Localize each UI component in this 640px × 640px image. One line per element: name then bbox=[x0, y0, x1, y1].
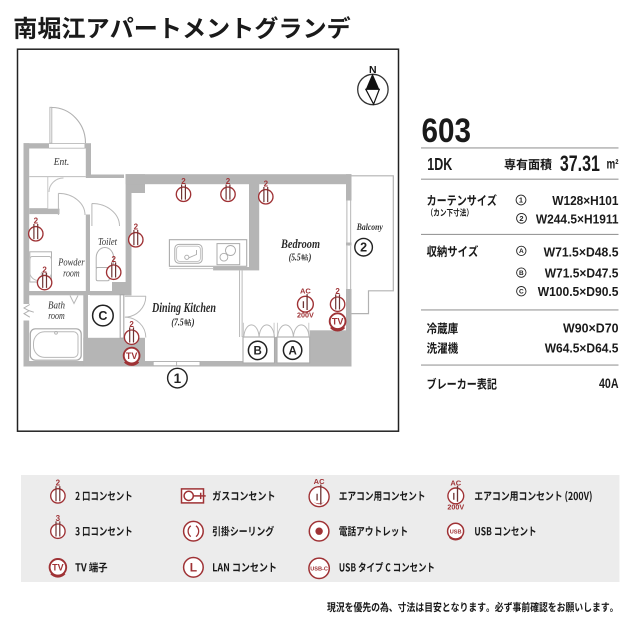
svg-text:Dining Kitchen: Dining Kitchen bbox=[151, 300, 216, 315]
svg-text:Toilet: Toilet bbox=[98, 237, 117, 248]
svg-text:1: 1 bbox=[174, 371, 182, 386]
svg-text:C: C bbox=[519, 289, 524, 296]
svg-text:W71.5×D47.5: W71.5×D47.5 bbox=[545, 266, 619, 281]
svg-text:B: B bbox=[253, 346, 261, 358]
svg-text:USB: USB bbox=[450, 529, 462, 535]
svg-text:room: room bbox=[48, 311, 65, 322]
svg-text:AC: AC bbox=[314, 477, 325, 486]
svg-text:2: 2 bbox=[360, 241, 367, 255]
svg-text:USB-C: USB-C bbox=[310, 566, 328, 572]
svg-text:W244.5×H1911: W244.5×H1911 bbox=[536, 211, 619, 226]
svg-text:1: 1 bbox=[519, 196, 523, 205]
svg-text:B: B bbox=[519, 270, 524, 277]
svg-text:(7.5: (7.5 bbox=[171, 317, 184, 329]
svg-text:200V: 200V bbox=[447, 502, 464, 511]
svg-text:TV: TV bbox=[52, 563, 64, 574]
svg-text:W64.5×D64.5: W64.5×D64.5 bbox=[545, 340, 619, 355]
svg-text:37.31: 37.31 bbox=[560, 151, 600, 176]
svg-text:L: L bbox=[190, 561, 197, 575]
svg-text:Powder: Powder bbox=[57, 258, 84, 269]
svg-text:W90×D70: W90×D70 bbox=[563, 321, 619, 336]
svg-text:1DK: 1DK bbox=[427, 154, 452, 174]
svg-text:): ) bbox=[191, 317, 195, 329]
svg-text:): ) bbox=[308, 252, 312, 263]
svg-text:TV: TV bbox=[126, 351, 138, 362]
svg-text:Bedroom: Bedroom bbox=[280, 236, 320, 251]
svg-text:200V: 200V bbox=[297, 311, 314, 320]
svg-text:40A: 40A bbox=[599, 376, 619, 391]
svg-text:A: A bbox=[519, 248, 524, 255]
svg-text:W100.5×D90.5: W100.5×D90.5 bbox=[538, 284, 619, 299]
svg-text:(5.5: (5.5 bbox=[289, 252, 301, 263]
svg-text:m²: m² bbox=[607, 156, 619, 171]
svg-text:2: 2 bbox=[519, 214, 523, 223]
svg-text:Ent.: Ent. bbox=[53, 156, 69, 168]
svg-text:Balcony: Balcony bbox=[356, 223, 383, 233]
svg-text:room: room bbox=[63, 269, 80, 280]
svg-text:TV: TV bbox=[332, 317, 344, 328]
svg-text:603: 603 bbox=[422, 112, 472, 150]
svg-text:W71.5×D48.5: W71.5×D48.5 bbox=[544, 244, 619, 259]
svg-text:C: C bbox=[98, 309, 107, 323]
svg-text:AC: AC bbox=[450, 478, 461, 487]
svg-text:A: A bbox=[288, 345, 296, 357]
svg-text:AC: AC bbox=[300, 287, 311, 296]
svg-text:W128×H101: W128×H101 bbox=[552, 193, 618, 208]
